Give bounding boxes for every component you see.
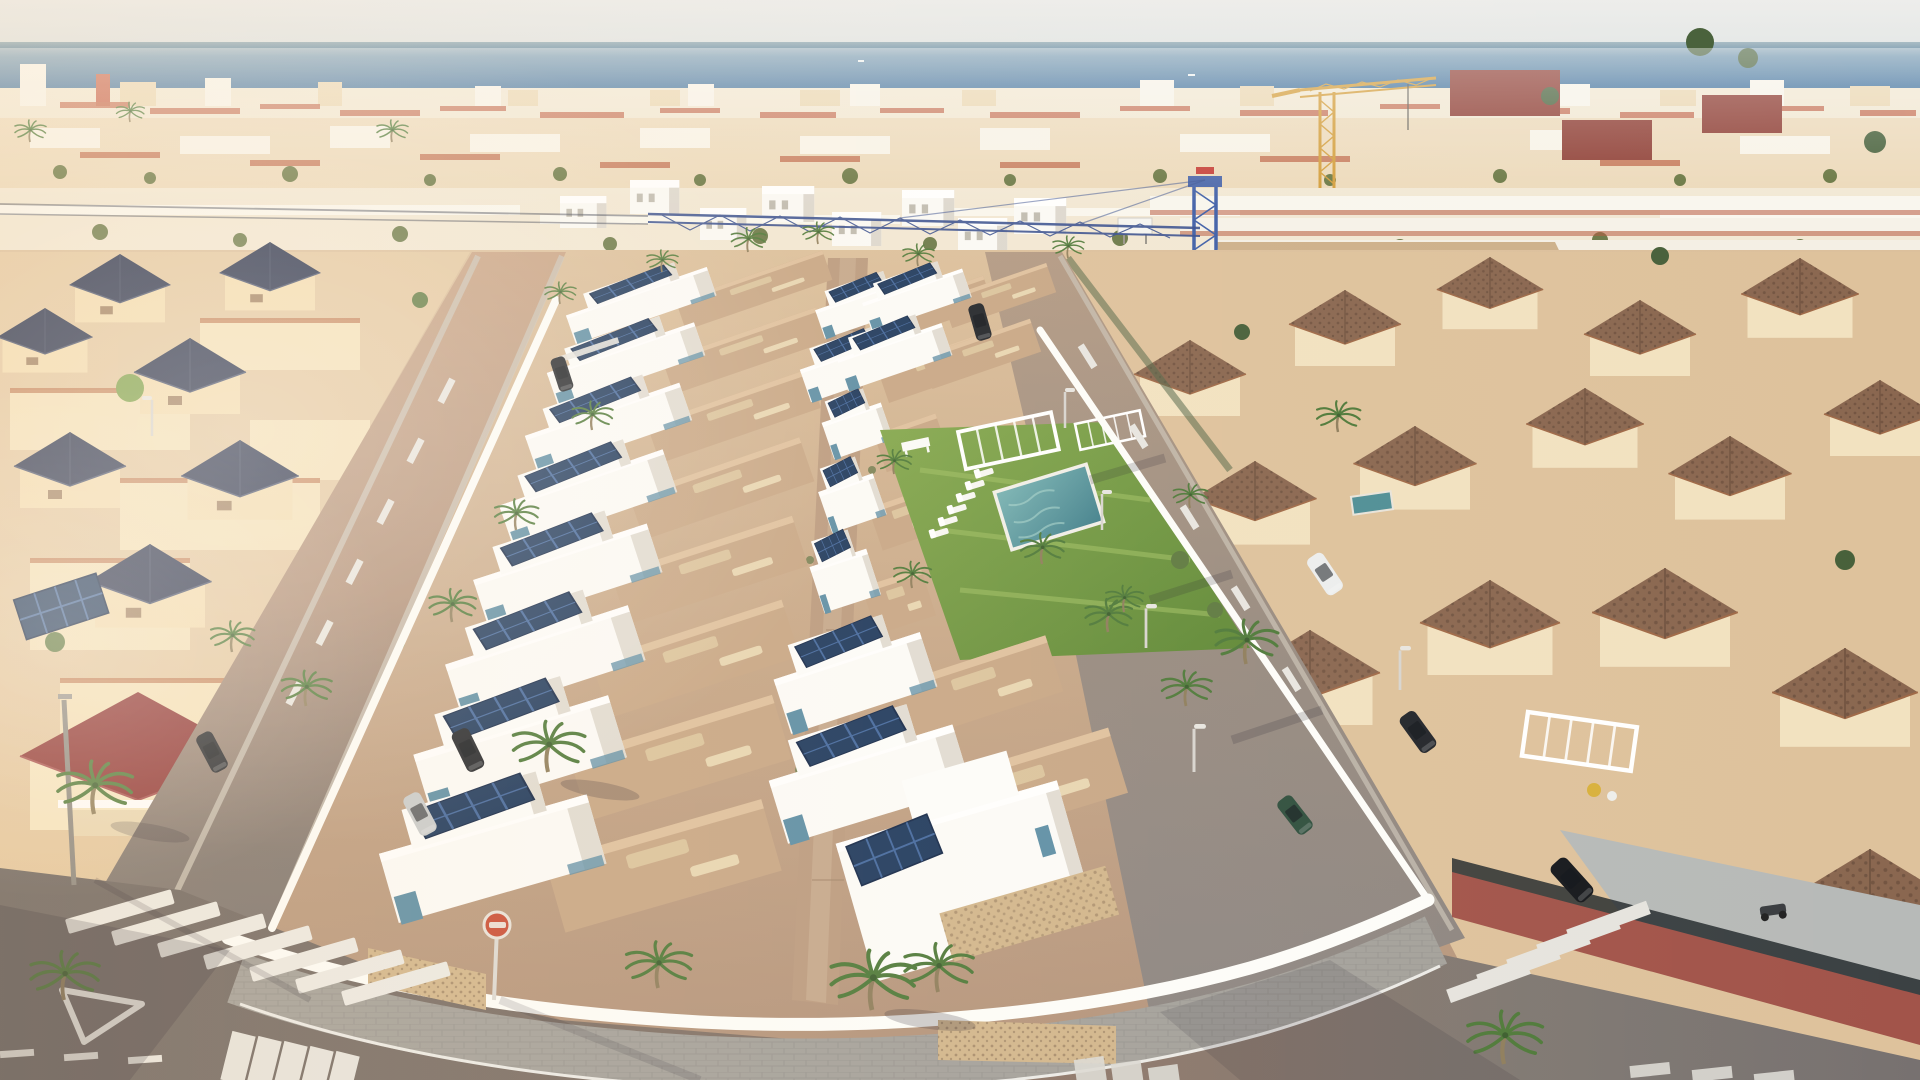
aerial-photo <box>0 0 1920 1080</box>
aerial-photo-canvas <box>0 0 1920 1080</box>
